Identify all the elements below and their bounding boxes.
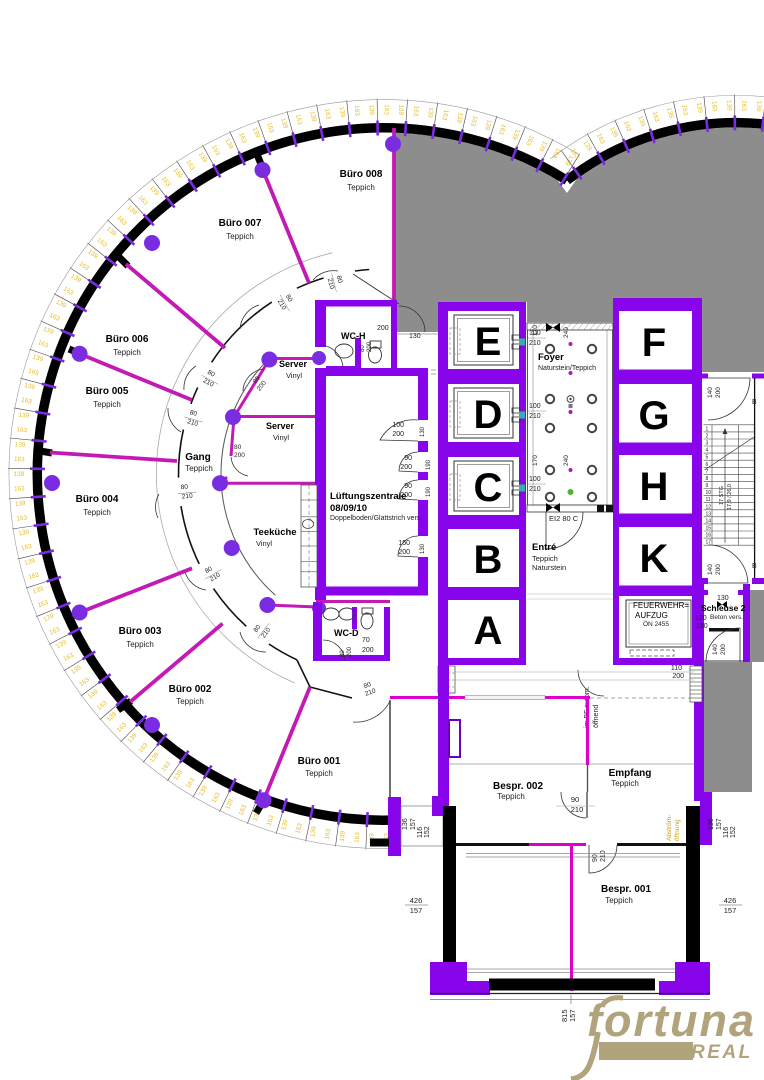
svg-text:Büro 005: Büro 005: [86, 386, 129, 397]
svg-text:80: 80: [360, 345, 366, 352]
svg-text:157: 157: [568, 1009, 577, 1022]
svg-text:210: 210: [529, 413, 541, 420]
svg-text:Empfang: Empfang: [609, 768, 652, 779]
svg-text:90: 90: [592, 854, 599, 862]
svg-text:G: G: [638, 394, 669, 438]
svg-text:210: 210: [529, 340, 541, 347]
svg-text:Teppich: Teppich: [113, 348, 141, 357]
svg-text:163: 163: [14, 485, 25, 492]
svg-text:6: 6: [706, 462, 709, 468]
svg-text:13: 13: [706, 511, 712, 517]
svg-text:Lüftungszentrale: Lüftungszentrale: [330, 491, 407, 502]
svg-text:ÖN 2455: ÖN 2455: [643, 620, 669, 628]
svg-text:Teppich: Teppich: [605, 896, 633, 905]
svg-text:1: 1: [706, 426, 709, 432]
svg-text:130: 130: [717, 595, 729, 602]
svg-text:WC-H: WC-H: [341, 331, 366, 341]
svg-text:200: 200: [367, 341, 373, 352]
svg-text:FEUERWEHR=: FEUERWEHR=: [633, 601, 689, 610]
svg-text:14: 14: [706, 518, 712, 524]
svg-text:200: 200: [672, 673, 684, 680]
svg-text:163: 163: [383, 104, 390, 115]
svg-text:100: 100: [392, 422, 404, 429]
svg-text:7: 7: [706, 469, 709, 475]
svg-text:163: 163: [353, 105, 361, 116]
svg-text:157: 157: [410, 818, 417, 830]
svg-text:157: 157: [716, 818, 723, 830]
svg-text:Teeküche: Teeküche: [253, 527, 296, 538]
svg-text:Büro 007: Büro 007: [219, 218, 262, 229]
svg-text:D: D: [474, 393, 503, 437]
svg-text:150: 150: [398, 540, 410, 547]
svg-text:163: 163: [740, 100, 747, 111]
svg-text:5: 5: [706, 455, 709, 461]
svg-text:EI2 80 C: EI2 80 C: [549, 514, 579, 523]
svg-text:170: 170: [532, 455, 539, 466]
svg-text:163: 163: [14, 456, 25, 464]
svg-text:Server: Server: [279, 359, 308, 369]
svg-text:136: 136: [402, 818, 409, 830]
svg-text:Büro 002: Büro 002: [169, 684, 212, 695]
svg-text:200: 200: [377, 325, 389, 332]
svg-text:Teppich: Teppich: [226, 232, 254, 241]
svg-text:163: 163: [16, 514, 28, 522]
svg-text:10: 10: [706, 490, 712, 496]
svg-text:90: 90: [404, 455, 412, 462]
svg-text:öffnung: öffnung: [674, 819, 681, 841]
svg-text:Teppich: Teppich: [305, 769, 333, 778]
svg-text:163: 163: [710, 101, 718, 112]
svg-text:Gang: Gang: [185, 452, 211, 463]
svg-text:Doppelboden/Glattstrich vers.: Doppelboden/Glattstrich vers.: [330, 515, 422, 522]
svg-text:200: 200: [400, 492, 412, 499]
svg-text:WC-D: WC-D: [334, 628, 359, 638]
svg-text:139: 139: [426, 107, 434, 119]
svg-text:08/09/10: 08/09/10: [330, 503, 367, 514]
svg-text:F: F: [642, 321, 666, 365]
svg-text:Teppich: Teppich: [83, 508, 111, 517]
svg-text:Teppich: Teppich: [497, 792, 525, 801]
svg-text:210: 210: [529, 486, 541, 493]
svg-text:136: 136: [708, 818, 715, 830]
svg-text:17 STG: 17 STG: [719, 486, 725, 505]
svg-text:120: 120: [695, 615, 707, 622]
svg-text:190: 190: [426, 486, 432, 497]
svg-text:139: 139: [14, 471, 25, 478]
svg-text:100: 100: [529, 476, 541, 483]
svg-text:200: 200: [400, 464, 412, 471]
svg-text:139: 139: [15, 441, 26, 449]
svg-text:8: 8: [706, 476, 709, 482]
svg-text:163: 163: [353, 832, 361, 844]
svg-text:B: B: [752, 563, 757, 570]
svg-text:152: 152: [424, 826, 431, 838]
svg-text:Server: Server: [266, 421, 295, 431]
svg-text:12: 12: [706, 504, 712, 510]
svg-text:163: 163: [412, 105, 420, 117]
svg-text:2: 2: [706, 434, 709, 440]
svg-text:A: A: [474, 609, 503, 653]
svg-text:Schleuse 2: Schleuse 2: [701, 603, 746, 613]
svg-text:140: 140: [707, 387, 714, 398]
svg-text:210: 210: [600, 850, 607, 862]
svg-text:163: 163: [16, 426, 28, 434]
svg-text:110: 110: [671, 665, 682, 672]
svg-text:139: 139: [18, 412, 30, 420]
svg-text:140: 140: [712, 644, 719, 655]
svg-text:170: 170: [532, 325, 539, 336]
svg-text:15: 15: [706, 526, 712, 532]
svg-text:öffnend: öffnend: [593, 705, 600, 728]
svg-text:16: 16: [706, 533, 712, 539]
svg-text:200: 200: [392, 431, 404, 438]
svg-text:139: 139: [339, 830, 347, 842]
svg-text:Teppich: Teppich: [126, 640, 154, 649]
svg-text:Beton vers.: Beton vers.: [710, 614, 743, 621]
svg-text:139: 139: [725, 100, 733, 111]
svg-text:Vinyl: Vinyl: [256, 539, 272, 548]
svg-text:Teppich: Teppich: [93, 400, 121, 409]
svg-text:116: 116: [723, 827, 730, 838]
svg-text:Teppich: Teppich: [176, 697, 204, 706]
svg-text:Abström-: Abström-: [666, 815, 673, 841]
svg-text:Büro 001: Büro 001: [298, 756, 341, 767]
svg-text:139: 139: [338, 106, 346, 118]
svg-text:Entré: Entré: [532, 542, 556, 553]
svg-text:139: 139: [367, 104, 375, 115]
svg-text:70: 70: [362, 637, 370, 644]
svg-text:AUFZUG: AUFZUG: [635, 611, 668, 620]
svg-text:B: B: [474, 538, 503, 582]
svg-text:163: 163: [323, 108, 331, 120]
svg-text:90: 90: [404, 483, 412, 490]
svg-text:130: 130: [420, 426, 426, 437]
svg-text:200: 200: [720, 644, 727, 655]
svg-text:190: 190: [426, 459, 432, 470]
svg-text:140: 140: [707, 564, 714, 575]
svg-text:K: K: [640, 537, 669, 581]
svg-text:139: 139: [397, 104, 404, 115]
svg-text:210: 210: [182, 493, 194, 501]
svg-text:139: 139: [15, 500, 27, 508]
svg-text:90: 90: [571, 795, 579, 804]
svg-text:Büro 006: Büro 006: [106, 334, 149, 345]
svg-text:100: 100: [529, 403, 541, 410]
svg-text:130: 130: [420, 543, 426, 554]
svg-text:Büro 003: Büro 003: [119, 626, 162, 637]
svg-text:Naturstein: Naturstein: [532, 563, 566, 572]
svg-text:80: 80: [340, 650, 346, 657]
svg-text:200: 200: [715, 564, 722, 575]
svg-text:Vinyl: Vinyl: [286, 371, 302, 380]
svg-text:116: 116: [417, 827, 424, 838]
svg-text:Teppich: Teppich: [347, 183, 375, 192]
svg-text:Vinyl: Vinyl: [273, 433, 289, 442]
svg-text:240: 240: [563, 455, 570, 466]
svg-text:C: C: [474, 466, 503, 510]
svg-text:80: 80: [180, 484, 188, 492]
svg-text:Teppich: Teppich: [532, 554, 558, 563]
svg-text:240: 240: [563, 327, 570, 338]
svg-text:200: 200: [715, 387, 722, 398]
svg-text:Bespr. 002: Bespr. 002: [493, 781, 543, 792]
svg-text:200: 200: [362, 647, 374, 654]
svg-text:3: 3: [706, 441, 709, 447]
svg-text:426: 426: [410, 896, 423, 905]
svg-text:210: 210: [571, 805, 584, 814]
svg-text:80: 80: [234, 444, 242, 451]
svg-text:17,9 / 26,0: 17,9 / 26,0: [727, 484, 733, 510]
svg-text:4: 4: [706, 448, 709, 454]
svg-text:Büro 004: Büro 004: [76, 494, 119, 505]
svg-text:200: 200: [398, 549, 410, 556]
svg-text:230: 230: [696, 623, 708, 630]
svg-text:Büro 008: Büro 008: [340, 169, 383, 180]
svg-text:426: 426: [724, 896, 737, 905]
svg-text:Teppich: Teppich: [185, 464, 213, 473]
svg-text:200: 200: [347, 646, 353, 657]
svg-text:157: 157: [410, 906, 423, 915]
svg-text:Teppich: Teppich: [611, 779, 639, 788]
svg-text:H: H: [640, 465, 669, 509]
svg-text:B: B: [752, 399, 757, 406]
svg-text:139: 139: [755, 101, 762, 112]
svg-text:11: 11: [706, 497, 711, 503]
svg-text:157: 157: [724, 906, 737, 915]
svg-text:Bespr. 001: Bespr. 001: [601, 884, 651, 895]
svg-text:9: 9: [706, 483, 709, 489]
svg-text:152: 152: [730, 826, 737, 838]
svg-text:E: E: [475, 320, 502, 364]
svg-text:REAL: REAL: [691, 1042, 753, 1063]
svg-text:Naturstein/Teppich: Naturstein/Teppich: [538, 365, 596, 372]
svg-text:fortuna: fortuna: [587, 995, 756, 1046]
svg-text:200: 200: [234, 452, 245, 459]
